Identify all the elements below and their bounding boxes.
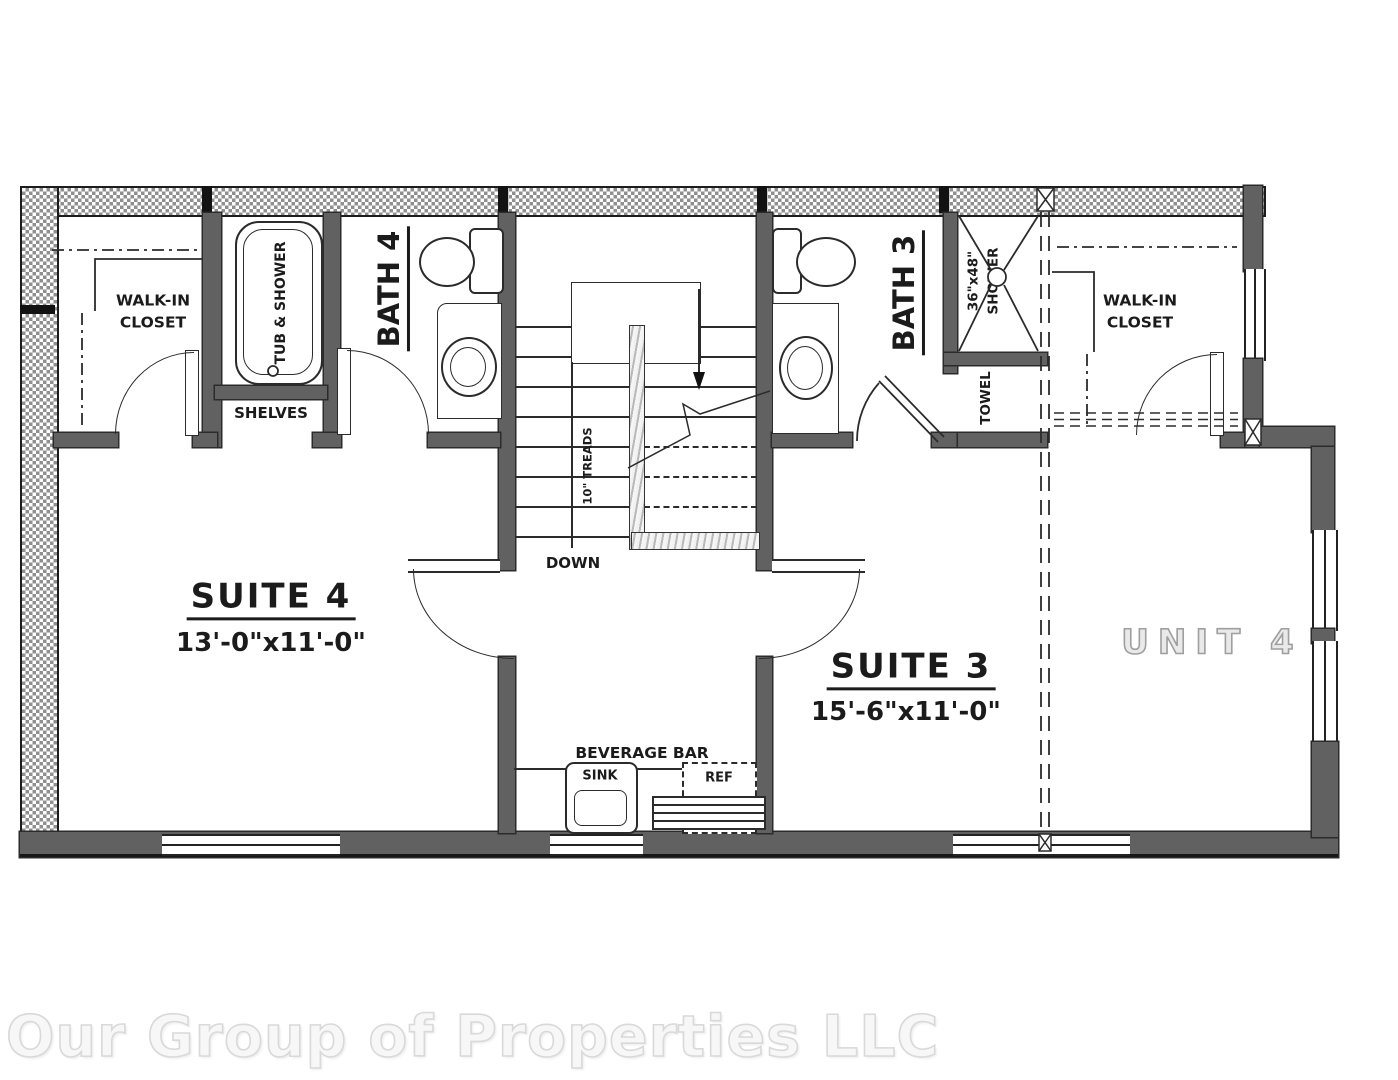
wall-closet-east-upper (1244, 186, 1262, 271)
label-suite4: SUITE 4 (187, 572, 356, 621)
wall-towel-south (958, 433, 1047, 447)
label-walkin-closet-right: WALK-IN CLOSET (1103, 290, 1177, 335)
label-ref: REF (705, 770, 733, 789)
door-arc-closet-right (1136, 354, 1217, 435)
wall-unit4-top-jog (1260, 427, 1334, 447)
window-closet-east (1244, 269, 1266, 361)
wall-unit4-east-lower (1312, 742, 1338, 837)
stair-tread-hidden (644, 506, 757, 508)
wall-unit4-east-upper (1312, 447, 1334, 532)
sink-oval-inner (787, 346, 823, 390)
toilet-bowl (419, 237, 475, 287)
label-towel: TOWEL (977, 371, 997, 424)
label-tub-shower: TUB & SHOWER (271, 241, 291, 364)
door-bath3 (857, 376, 944, 442)
wall-stair-east-upper (757, 213, 772, 570)
stair-tread-hidden (644, 476, 757, 478)
wall-bath3-south-b (932, 433, 958, 447)
stair-railing-vertical (629, 325, 645, 550)
label-walkin-closet-left: WALK-IN CLOSET (116, 290, 190, 335)
walkin-line1: WALK-IN (116, 292, 190, 310)
stair-tread-hidden (644, 446, 757, 448)
wall-bath3-south-a (772, 433, 852, 447)
stair-below-louver (652, 796, 766, 830)
label-beverage-bar: BEVERAGE BAR (575, 742, 708, 764)
wall-stair-west-lower (499, 657, 515, 833)
window-suite3 (953, 834, 1130, 856)
wall-rcloset-south (1221, 433, 1244, 447)
walkin-line2: CLOSET (120, 314, 186, 332)
wall-shower-west (944, 213, 957, 353)
window-suite4 (162, 834, 340, 856)
wall-suite4-north-c (313, 433, 341, 447)
window-unit4-east-2 (1312, 641, 1338, 744)
sink-basin (574, 790, 627, 826)
door-arc-closet-left (115, 352, 194, 434)
wall-suite4-north-d (428, 433, 500, 447)
exterior-wall-left (20, 186, 59, 850)
stair-edge-line (571, 362, 573, 548)
label-suite4-dims: 13'-0"x11'-0" (176, 625, 366, 663)
label-sink: SINK (582, 768, 617, 787)
label-unit4: UNIT 4 (1121, 618, 1302, 667)
label-treads: 10" TREADS (580, 427, 597, 504)
wall-junction-xbox (1037, 188, 1261, 851)
wall-closet-tub (203, 213, 221, 447)
label-down: DOWN (546, 553, 600, 575)
wall-suite4-north-a (54, 433, 118, 447)
wall-tubroom-south (215, 386, 327, 399)
label-bath3: BATH 3 (883, 231, 925, 356)
wall-tick (939, 186, 949, 213)
wall-tick (757, 186, 767, 213)
label-bath4: BATH 4 (368, 227, 410, 352)
floor-plan: WALK-IN CLOSET WALK-IN CLOSET TUB & SHOW… (0, 0, 1398, 1080)
wall-tick (202, 186, 212, 213)
door-arc-bath4 (347, 350, 429, 434)
wall-tick (20, 305, 55, 314)
label-suite3: SUITE 3 (827, 642, 996, 691)
stair-railing-horizontal (631, 532, 760, 550)
closet-shelf-line (1052, 272, 1094, 352)
label-suite3-dims: 15'-6"x11'-0" (811, 694, 1001, 732)
wall-tick (498, 186, 508, 213)
label-shower-size: 36"x48" SHOWER (964, 247, 1003, 314)
sink-oval-inner (450, 347, 486, 387)
watermark-text: Our Group of Properties LLC (6, 1004, 939, 1070)
stair-break-line (628, 391, 770, 468)
window-unit4-east-1 (1312, 530, 1338, 631)
wall-shower-towel (944, 353, 1047, 365)
toilet-bowl (796, 237, 856, 287)
label-shelves: SHELVES (234, 403, 308, 425)
door-arc-suite4 (413, 569, 514, 659)
window-beverage (550, 834, 643, 856)
